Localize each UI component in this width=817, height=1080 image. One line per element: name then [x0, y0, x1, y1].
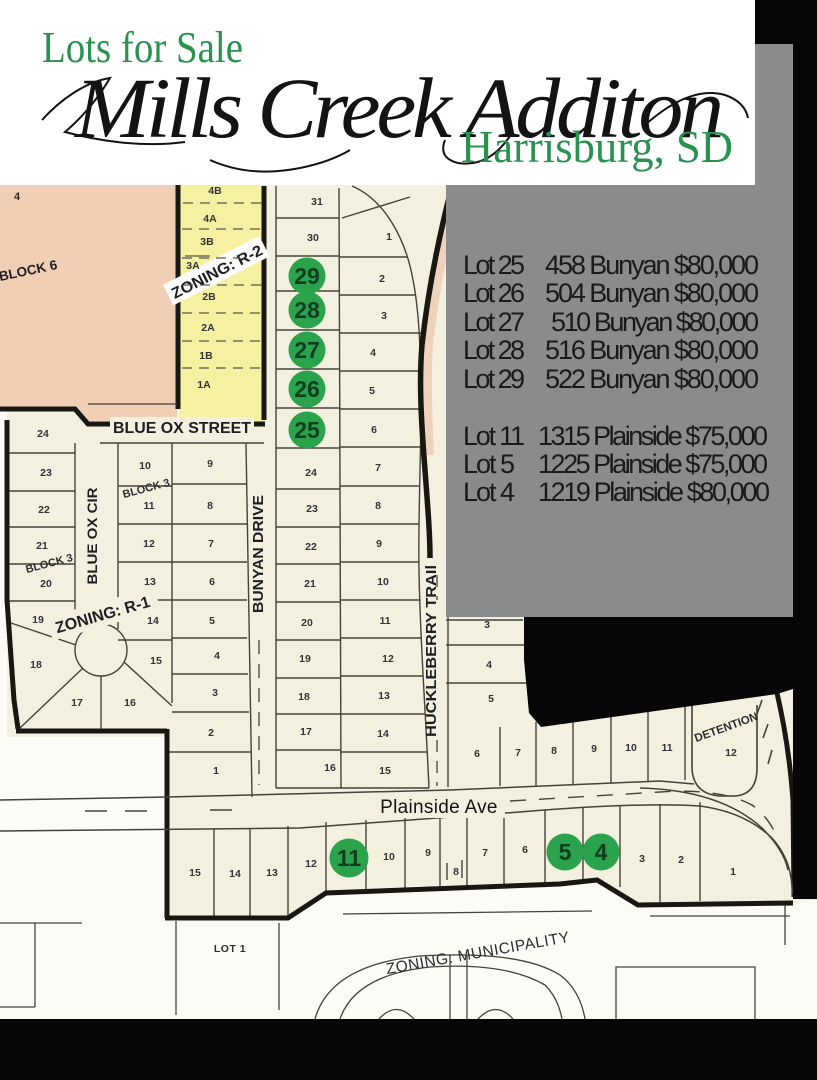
svg-text:8: 8	[207, 500, 213, 512]
svg-text:1225 Plainside $75,000: 1225 Plainside $75,000	[538, 449, 768, 479]
svg-text:5: 5	[488, 693, 494, 705]
svg-text:12: 12	[305, 858, 317, 870]
svg-text:12: 12	[382, 653, 394, 665]
svg-text:3B: 3B	[200, 236, 214, 248]
svg-text:15: 15	[379, 765, 391, 777]
svg-text:6: 6	[209, 576, 215, 588]
svg-text:4A: 4A	[203, 213, 217, 225]
svg-text:516 Bunyan $80,000: 516 Bunyan $80,000	[545, 335, 759, 365]
svg-text:1: 1	[730, 866, 736, 878]
svg-text:20: 20	[40, 578, 52, 590]
svg-text:Harrisburg, SD: Harrisburg, SD	[461, 121, 733, 172]
svg-text:14: 14	[229, 868, 241, 880]
svg-text:11: 11	[379, 615, 390, 627]
svg-text:8: 8	[453, 866, 459, 878]
svg-text:17: 17	[300, 726, 312, 738]
svg-text:21: 21	[36, 540, 48, 552]
svg-text:11: 11	[661, 742, 672, 754]
svg-text:510 Bunyan $80,000: 510 Bunyan $80,000	[551, 307, 759, 337]
svg-text:8: 8	[551, 745, 557, 757]
svg-text:28: 28	[294, 297, 320, 323]
svg-text:1A: 1A	[197, 379, 211, 391]
svg-text:LOT 1: LOT 1	[214, 943, 246, 955]
svg-text:27: 27	[294, 337, 320, 363]
svg-text:1: 1	[386, 231, 392, 243]
svg-text:18: 18	[298, 691, 310, 703]
svg-text:19: 19	[32, 614, 44, 626]
svg-text:24: 24	[37, 428, 49, 440]
svg-text:17: 17	[71, 697, 83, 709]
svg-text:4B: 4B	[208, 185, 222, 197]
svg-text:1: 1	[213, 765, 219, 777]
svg-text:2: 2	[379, 273, 385, 285]
svg-text:26: 26	[294, 376, 320, 402]
svg-text:4: 4	[14, 191, 21, 203]
svg-text:4: 4	[370, 347, 376, 359]
svg-text:504 Bunyan $80,000: 504 Bunyan $80,000	[545, 278, 759, 308]
svg-text:8: 8	[375, 500, 381, 512]
svg-text:23: 23	[40, 467, 52, 479]
svg-text:18: 18	[30, 659, 42, 671]
svg-text:BLUE OX STREET: BLUE OX STREET	[113, 420, 251, 437]
svg-text:Lot 25: Lot 25	[463, 250, 525, 280]
svg-text:13: 13	[144, 576, 156, 588]
svg-text:6: 6	[522, 844, 528, 856]
svg-text:4: 4	[595, 839, 608, 865]
svg-text:2: 2	[678, 854, 684, 866]
svg-text:31: 31	[311, 196, 323, 208]
svg-text:12: 12	[143, 538, 155, 550]
svg-text:Lot 29: Lot 29	[463, 364, 525, 394]
svg-text:1315 Plainside $75,000: 1315 Plainside $75,000	[538, 421, 768, 451]
svg-text:15: 15	[150, 655, 162, 667]
svg-text:13: 13	[266, 867, 278, 879]
svg-text:Plainside Ave: Plainside Ave	[380, 797, 498, 818]
svg-text:14: 14	[377, 728, 389, 740]
svg-text:Lot 11: Lot 11	[463, 421, 525, 451]
svg-text:15: 15	[189, 867, 201, 879]
svg-text:11: 11	[337, 845, 362, 871]
svg-text:5: 5	[559, 839, 572, 865]
svg-text:24: 24	[305, 467, 317, 479]
svg-text:4: 4	[214, 650, 220, 662]
svg-text:2A: 2A	[201, 322, 215, 334]
svg-text:20: 20	[301, 617, 313, 629]
svg-text:458 Bunyan $80,000: 458 Bunyan $80,000	[545, 250, 759, 280]
svg-text:5: 5	[209, 615, 215, 627]
svg-text:3A: 3A	[186, 260, 200, 272]
svg-text:9: 9	[591, 743, 597, 755]
svg-text:2: 2	[208, 727, 214, 739]
svg-text:10: 10	[377, 576, 389, 588]
svg-text:BUNYAN DRIVE: BUNYAN DRIVE	[250, 495, 267, 613]
svg-text:14: 14	[147, 615, 159, 627]
svg-text:10: 10	[383, 851, 395, 863]
svg-text:Lot 4: Lot 4	[463, 477, 515, 507]
svg-text:19: 19	[299, 653, 311, 665]
svg-text:23: 23	[306, 503, 318, 515]
svg-text:HUCKLEBERRY TRAIl: HUCKLEBERRY TRAIl	[423, 565, 440, 737]
svg-text:Lot 26: Lot 26	[463, 278, 525, 308]
svg-text:22: 22	[38, 504, 50, 516]
svg-text:7: 7	[208, 538, 214, 550]
svg-text:10: 10	[625, 742, 637, 754]
svg-text:13: 13	[378, 690, 390, 702]
svg-text:16: 16	[324, 762, 336, 774]
svg-text:BLUE OX CIR: BLUE OX CIR	[85, 487, 100, 584]
svg-text:25: 25	[294, 417, 320, 443]
svg-text:2B: 2B	[202, 291, 216, 303]
svg-text:29: 29	[294, 263, 320, 289]
svg-text:22: 22	[305, 541, 317, 553]
svg-text:3: 3	[639, 853, 645, 865]
svg-text:10: 10	[139, 460, 151, 472]
svg-text:1B: 1B	[199, 350, 213, 362]
svg-text:6: 6	[474, 748, 480, 760]
svg-text:9: 9	[425, 847, 431, 859]
svg-text:30: 30	[307, 232, 319, 244]
svg-text:7: 7	[482, 847, 488, 859]
svg-text:5: 5	[369, 385, 375, 397]
svg-text:6: 6	[371, 424, 377, 436]
svg-text:21: 21	[304, 578, 316, 590]
svg-text:3: 3	[212, 687, 218, 699]
svg-text:9: 9	[207, 458, 213, 470]
svg-text:16: 16	[124, 697, 136, 709]
svg-text:Lot 27: Lot 27	[463, 307, 525, 337]
svg-text:9: 9	[376, 538, 382, 550]
svg-text:Lot 28: Lot 28	[463, 335, 525, 365]
svg-text:11: 11	[143, 500, 154, 512]
svg-text:3: 3	[484, 619, 490, 631]
svg-text:3: 3	[381, 310, 387, 322]
svg-text:4: 4	[486, 659, 492, 671]
svg-text:7: 7	[375, 462, 381, 474]
svg-text:1219 Plainside $80,000: 1219 Plainside $80,000	[538, 477, 770, 507]
svg-text:12: 12	[725, 747, 737, 759]
svg-text:522 Bunyan $80,000: 522 Bunyan $80,000	[545, 364, 759, 394]
svg-text:7: 7	[515, 747, 521, 759]
svg-text:Lot 5: Lot 5	[463, 449, 515, 479]
